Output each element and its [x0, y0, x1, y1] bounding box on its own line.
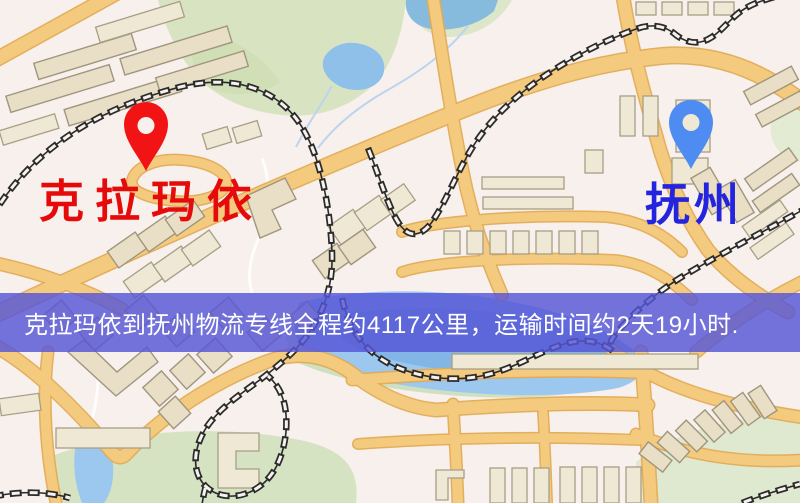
- origin-label: 克拉玛依: [39, 179, 263, 224]
- route-info-banner: 克拉玛依到抚州物流专线全程约4117公里，运输时间约2天19小时.: [0, 293, 800, 352]
- route-info-text: 克拉玛依到抚州物流专线全程约4117公里，运输时间约2天19小时.: [0, 305, 739, 340]
- route-map-image: 克拉玛依 抚州 克拉玛依到抚州物流专线全程约4117公里，运输时间约2天19小时…: [0, 0, 800, 503]
- destination-label: 抚州: [645, 182, 743, 227]
- map-canvas: [0, 0, 800, 503]
